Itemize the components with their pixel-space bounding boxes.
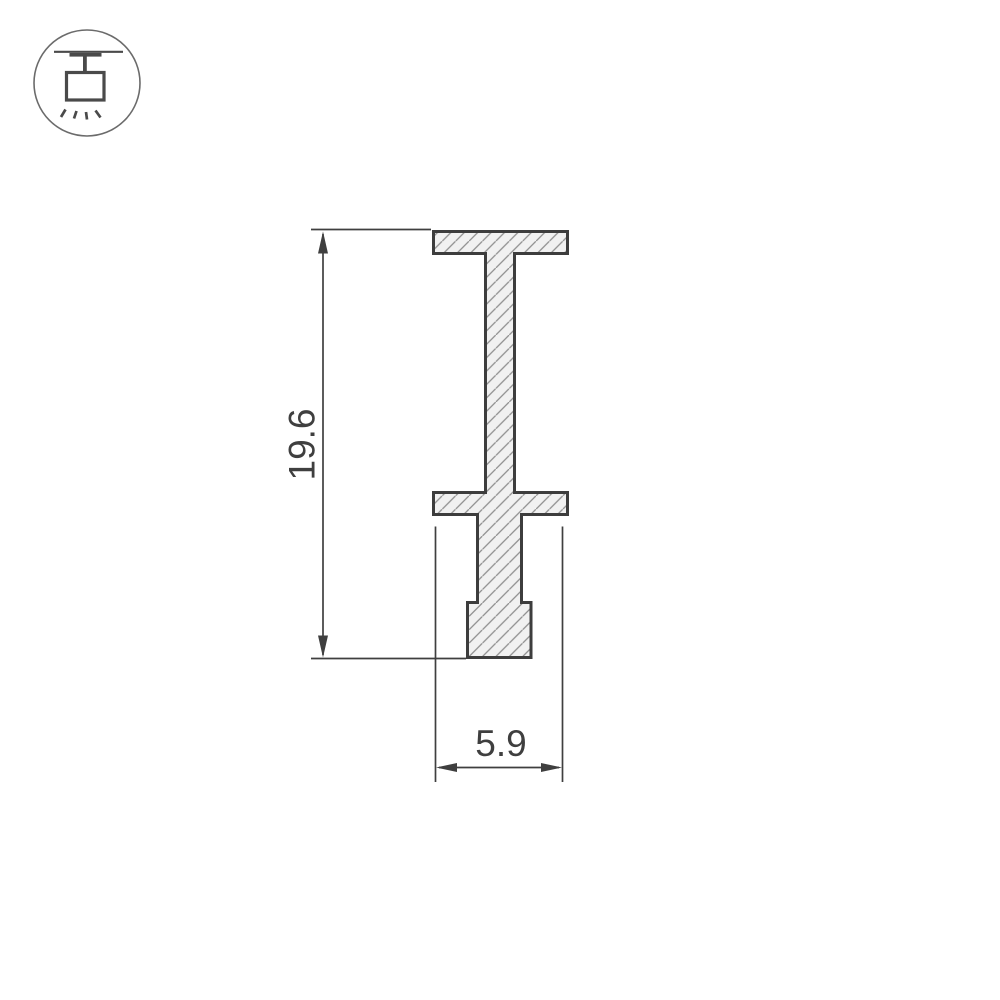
- technical-drawing: 19.6 5.9: [0, 0, 1000, 1000]
- width-arrow-left: [436, 763, 457, 772]
- height-arrow-up: [318, 232, 328, 254]
- width-dimension-label: 5.9: [475, 723, 526, 764]
- drawing-canvas: 19.6 5.9: [0, 0, 1000, 1000]
- width-arrow-right: [541, 763, 562, 772]
- height-dimension-label: 19.6: [282, 408, 323, 480]
- icon-lamp-box: [67, 73, 105, 101]
- icon-circle-border: [34, 30, 140, 136]
- ceiling-light-icon: [34, 30, 140, 136]
- height-dimension: [311, 230, 466, 659]
- height-arrow-down: [318, 636, 328, 658]
- profile-cross-section: [434, 232, 568, 658]
- icon-light-rays: [61, 110, 101, 120]
